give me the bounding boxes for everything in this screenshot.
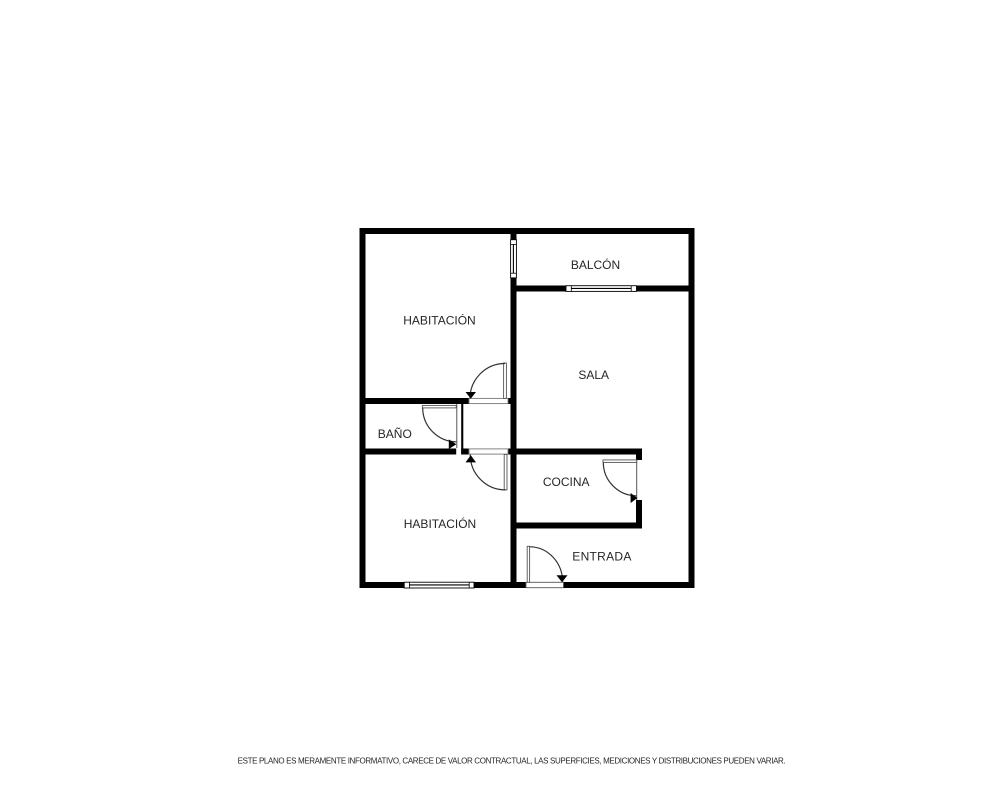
svg-text:HABITACIÓN: HABITACIÓN bbox=[404, 516, 476, 531]
svg-text:HABITACIÓN: HABITACIÓN bbox=[403, 312, 475, 327]
svg-text:SALA: SALA bbox=[578, 368, 609, 382]
svg-text:ENTRADA: ENTRADA bbox=[572, 550, 631, 564]
svg-text:COCINA: COCINA bbox=[543, 475, 590, 489]
svg-text:BAÑO: BAÑO bbox=[378, 427, 412, 441]
svg-text:BALCÓN: BALCÓN bbox=[571, 257, 620, 272]
svg-text:ESTE PLANO ES MERAMENTE INFORM: ESTE PLANO ES MERAMENTE INFORMATIVO, CAR… bbox=[238, 757, 786, 766]
